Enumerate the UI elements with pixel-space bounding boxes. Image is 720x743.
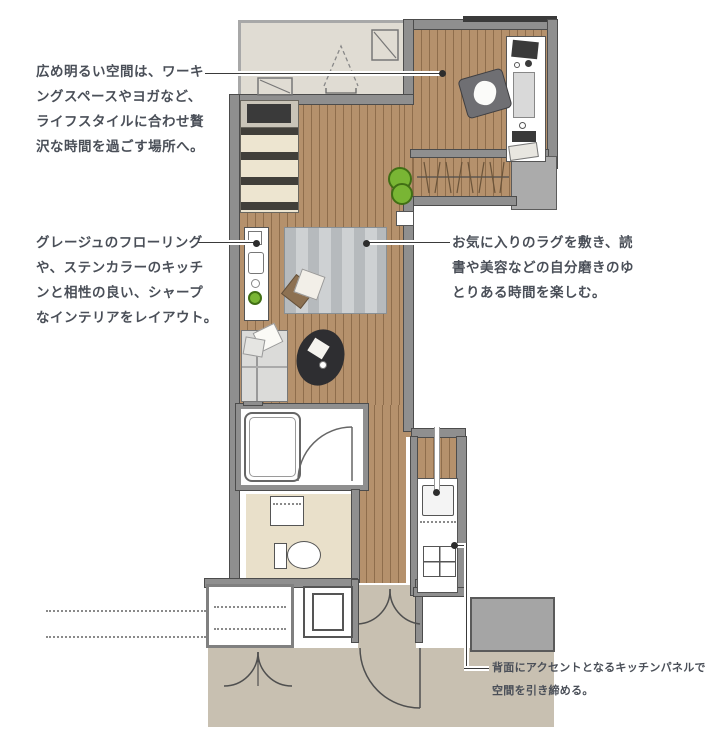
annotation-line: お気に入りのラグを敷き、読	[452, 230, 652, 255]
annotation-line: とりある時間を楽しむ。	[452, 280, 652, 305]
annotation-kitchen-panel: 背面にアクセントとなるキッチンパネルで 空間を引き締める。	[492, 657, 717, 703]
leader-kitchen-panel-seg2	[464, 543, 469, 671]
leader-dot-kitchen-panel	[451, 542, 458, 549]
annotation-line: ライフスタイルに合わせ贅	[36, 109, 218, 134]
counter-item-circle	[251, 279, 260, 288]
bathtub-inner	[249, 417, 296, 477]
corridor-dotted-line	[46, 610, 206, 612]
wall-balcony-divider	[404, 20, 413, 100]
leader-dot-interior	[253, 240, 260, 247]
annotation-line: や、ステンカラーのキッチ	[36, 255, 218, 280]
washing-machine-pan	[270, 496, 304, 526]
annotation-line: ンと相性の良い、シャープ	[36, 280, 218, 305]
leader-kitchen-panel-seg3	[464, 666, 489, 671]
desk-mat	[513, 72, 535, 118]
tv-screen	[247, 104, 291, 123]
counter-plant	[248, 291, 262, 305]
desk-item-circle	[519, 122, 526, 129]
meter-box	[470, 597, 555, 652]
leader-dot-rug	[363, 240, 370, 247]
stove	[423, 546, 456, 577]
annotation-line: 沢な時間を過ごす場所へ。	[36, 134, 218, 159]
annotation-workspace: 広め明るい空間は、ワーキ ングスペースやヨガなど、 ライフスタイルに合わせ贅 沢…	[36, 59, 218, 159]
leader-dot-kitchen-sink	[433, 489, 440, 496]
corridor-dotted-line	[46, 636, 206, 638]
sofa-seat-line	[242, 366, 287, 368]
wall-top-right-room-right	[548, 20, 557, 168]
annotation-rug: お気に入りのラグを敷き、読 書や美容などの自分磨きのゆ とりある時間を楽しむ。	[452, 230, 652, 305]
kitchen-sink-small	[248, 252, 264, 274]
toilet-tank	[274, 543, 287, 569]
toilet-bowl	[287, 541, 321, 569]
kitchen-counter-dashes	[420, 521, 456, 523]
side-stool	[396, 211, 414, 226]
desk-shelf-item	[512, 131, 536, 142]
leader-workspace	[205, 71, 443, 76]
entrance-recess	[358, 585, 416, 648]
desk-monitor	[511, 40, 539, 60]
table-cup	[319, 361, 327, 369]
closet-floor	[413, 157, 512, 198]
annotation-line: 背面にアクセントとなるキッチンパネルで	[492, 657, 717, 680]
desk-item-circle	[525, 60, 532, 67]
plant-pot	[391, 183, 413, 205]
leader-kitchen-sink-line	[434, 427, 440, 490]
annotation-line: 空間を引き締める。	[492, 680, 717, 703]
storage-dotted-line	[214, 628, 286, 630]
desk-item-circle	[514, 62, 520, 68]
leader-dot-workspace	[439, 70, 446, 77]
storage-closet	[206, 584, 294, 648]
annotation-interior: グレージュのフローリング や、ステンカラーのキッチ ンと相性の良い、シャープ な…	[36, 230, 218, 330]
annotation-line: グレージュのフローリング	[36, 230, 218, 255]
annotation-line: 書や美容などの自分磨きのゆ	[452, 255, 652, 280]
wall-sanitary-hall	[352, 490, 359, 582]
wall-left-main	[230, 95, 239, 588]
void-block	[512, 157, 556, 209]
wall-top-dark-beam	[463, 16, 557, 22]
shelf-unit	[240, 126, 299, 213]
annotation-line: 広め明るい空間は、ワーキ	[36, 59, 218, 84]
leader-rug	[368, 240, 450, 245]
sofa-cushion	[243, 336, 266, 357]
wall-closet-bottom	[404, 197, 516, 205]
washing-pan-dashes	[273, 503, 301, 505]
annotation-line: ングスペースやヨガなど、	[36, 84, 218, 109]
wall-living-right	[404, 197, 413, 431]
annotation-line: なインテリアをレイアウト。	[36, 305, 218, 330]
floorplan-image: 広め明るい空間は、ワーキ ングスペースやヨガなど、 ライフスタイルに合わせ贅 沢…	[0, 0, 720, 743]
storage-dotted-line	[214, 606, 286, 608]
utility-box-inner	[312, 593, 344, 631]
balcony	[238, 20, 406, 98]
